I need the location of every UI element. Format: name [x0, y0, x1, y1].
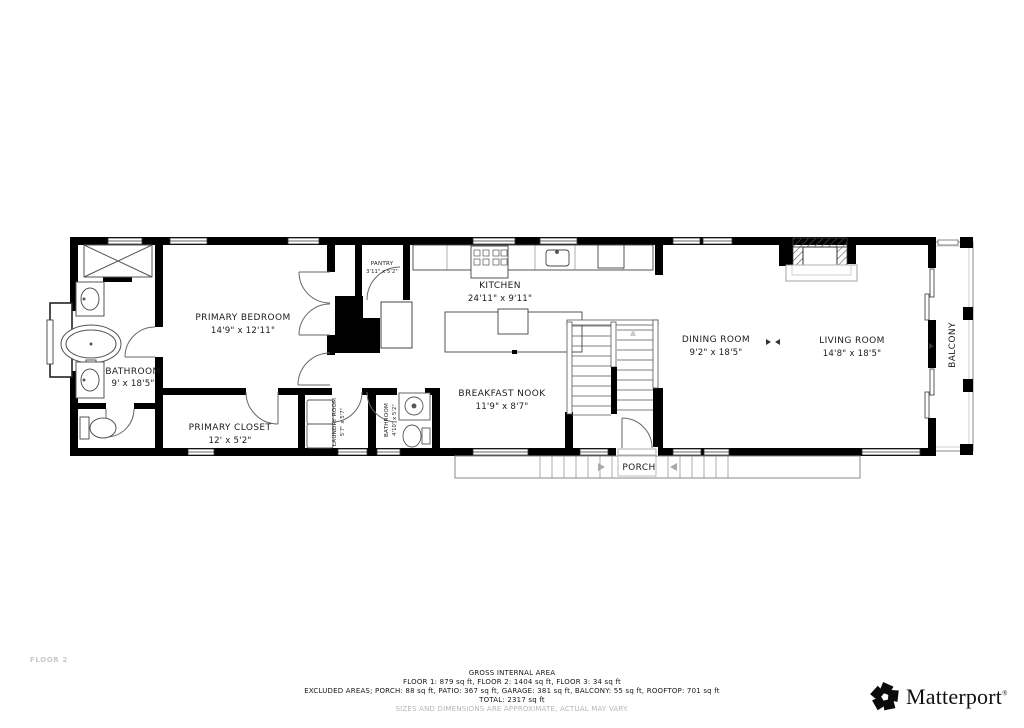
utility-cabinet [381, 302, 412, 348]
primary-closet-label: PRIMARY CLOSET [189, 423, 272, 433]
toilet-tank [80, 417, 89, 439]
porch-label: PORCH [622, 463, 655, 473]
room-labels: PRIMARY BEDROOM 14'9" x 12'11" BATHROOM … [105, 261, 958, 473]
hall-bathroom-label: BATHROOM [384, 403, 390, 437]
living-room-label: LIVING ROOM [819, 336, 885, 346]
kitchen-label: KITCHEN [479, 281, 521, 291]
floor-plan: PRIMARY BEDROOM 14'9" x 12'11" BATHROOM … [0, 0, 1024, 724]
kitchen-fixtures [413, 245, 653, 354]
porch-structure [455, 456, 860, 478]
breakfast-nook-label: BREAKFAST NOOK [458, 389, 546, 399]
balcony-label: BALCONY [948, 322, 958, 368]
gross-area-title: GROSS INTERNAL AREA [0, 669, 1024, 678]
washer [307, 400, 333, 424]
kitchen-dims: 24'11" x 9'11" [468, 294, 532, 304]
hearth [786, 265, 857, 281]
laundry-room-dims: 5'7" x 5'7" [340, 408, 346, 436]
hall-bathroom-dims: 4'10" x 5'2" [392, 404, 398, 436]
matterport-wordmark: Matterport® [906, 684, 1008, 710]
floor-number-label: FLOOR 2 [30, 656, 68, 664]
bathroom-dims: 9' x 18'5" [111, 379, 154, 389]
registered-trademark: ® [1002, 690, 1008, 698]
appliance [598, 245, 624, 268]
living-room-dims: 14'8" x 18'5" [823, 349, 882, 359]
dining-room-label: DINING ROOM [682, 335, 750, 345]
primary-closet-dims: 12' x 5'2" [208, 436, 251, 446]
breakfast-nook-dims: 11'9" x 8'7" [476, 402, 529, 412]
matterport-logo-icon [869, 681, 901, 713]
laundry-room-label: LAUNDRY ROOM [332, 398, 338, 446]
floor-plan-canvas: PRIMARY BEDROOM 14'9" x 12'11" BATHROOM … [0, 0, 1024, 724]
toilet2-bowl [403, 425, 421, 447]
dining-opening-marker [766, 339, 780, 345]
faucet [556, 251, 559, 254]
pantry-dims: 3'11" x 5'2" [366, 269, 398, 275]
primary-bedroom-label: PRIMARY BEDROOM [195, 313, 290, 323]
dining-room-dims: 9'2" x 18'5" [690, 348, 743, 358]
toilet-bowl [90, 418, 116, 438]
hall-bathroom-fixtures [399, 393, 430, 447]
toilet2-tank [422, 428, 430, 444]
island-cooktop [498, 309, 528, 334]
dryer [307, 424, 333, 448]
island-tick [512, 350, 517, 354]
bathroom-label: BATHROOM [105, 367, 160, 377]
laundry-fixtures [307, 400, 333, 448]
pantry-label: PANTRY [371, 261, 394, 267]
fireplace [786, 238, 857, 281]
primary-bedroom-dims: 14'9" x 12'11" [211, 326, 275, 336]
matterport-branding: Matterport® [869, 681, 1008, 713]
